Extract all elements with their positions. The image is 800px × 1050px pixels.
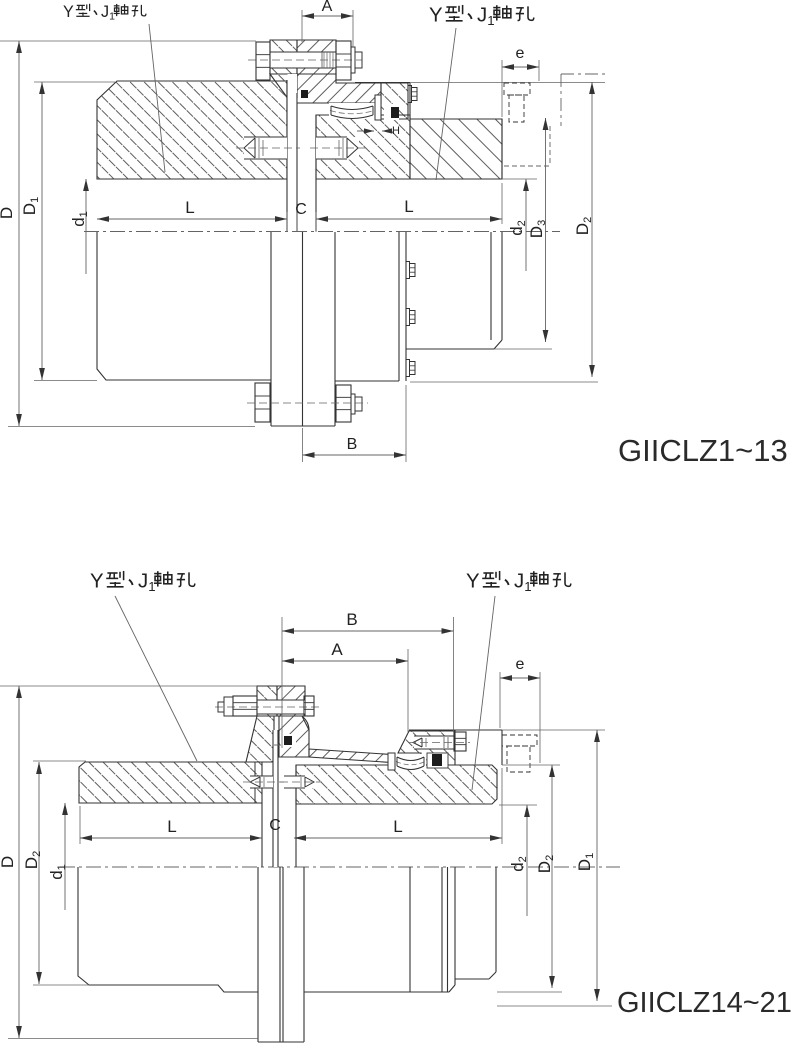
svg-text:L: L: [404, 197, 413, 216]
svg-text:H: H: [392, 125, 400, 137]
svg-text:Y: Y: [466, 570, 480, 592]
svg-text:GIICLZ1~13: GIICLZ1~13: [618, 433, 788, 468]
svg-text:e: e: [516, 45, 525, 62]
svg-text:L: L: [393, 817, 402, 836]
svg-text:C: C: [269, 817, 281, 834]
svg-text:D: D: [0, 207, 16, 219]
svg-text:B: B: [347, 436, 358, 453]
svg-text:D: D: [0, 856, 17, 868]
svg-text:L: L: [167, 817, 176, 836]
svg-text:GIICLZ14~21: GIICLZ14~21: [617, 987, 792, 1019]
svg-text:Y: Y: [429, 4, 443, 26]
svg-text:A: A: [322, 0, 333, 15]
svg-text:A: A: [331, 640, 343, 659]
svg-text:Y: Y: [63, 3, 74, 21]
svg-text:L: L: [185, 198, 194, 217]
svg-text:B: B: [346, 610, 357, 629]
svg-text:Y: Y: [90, 570, 104, 592]
svg-text:e: e: [516, 656, 525, 673]
